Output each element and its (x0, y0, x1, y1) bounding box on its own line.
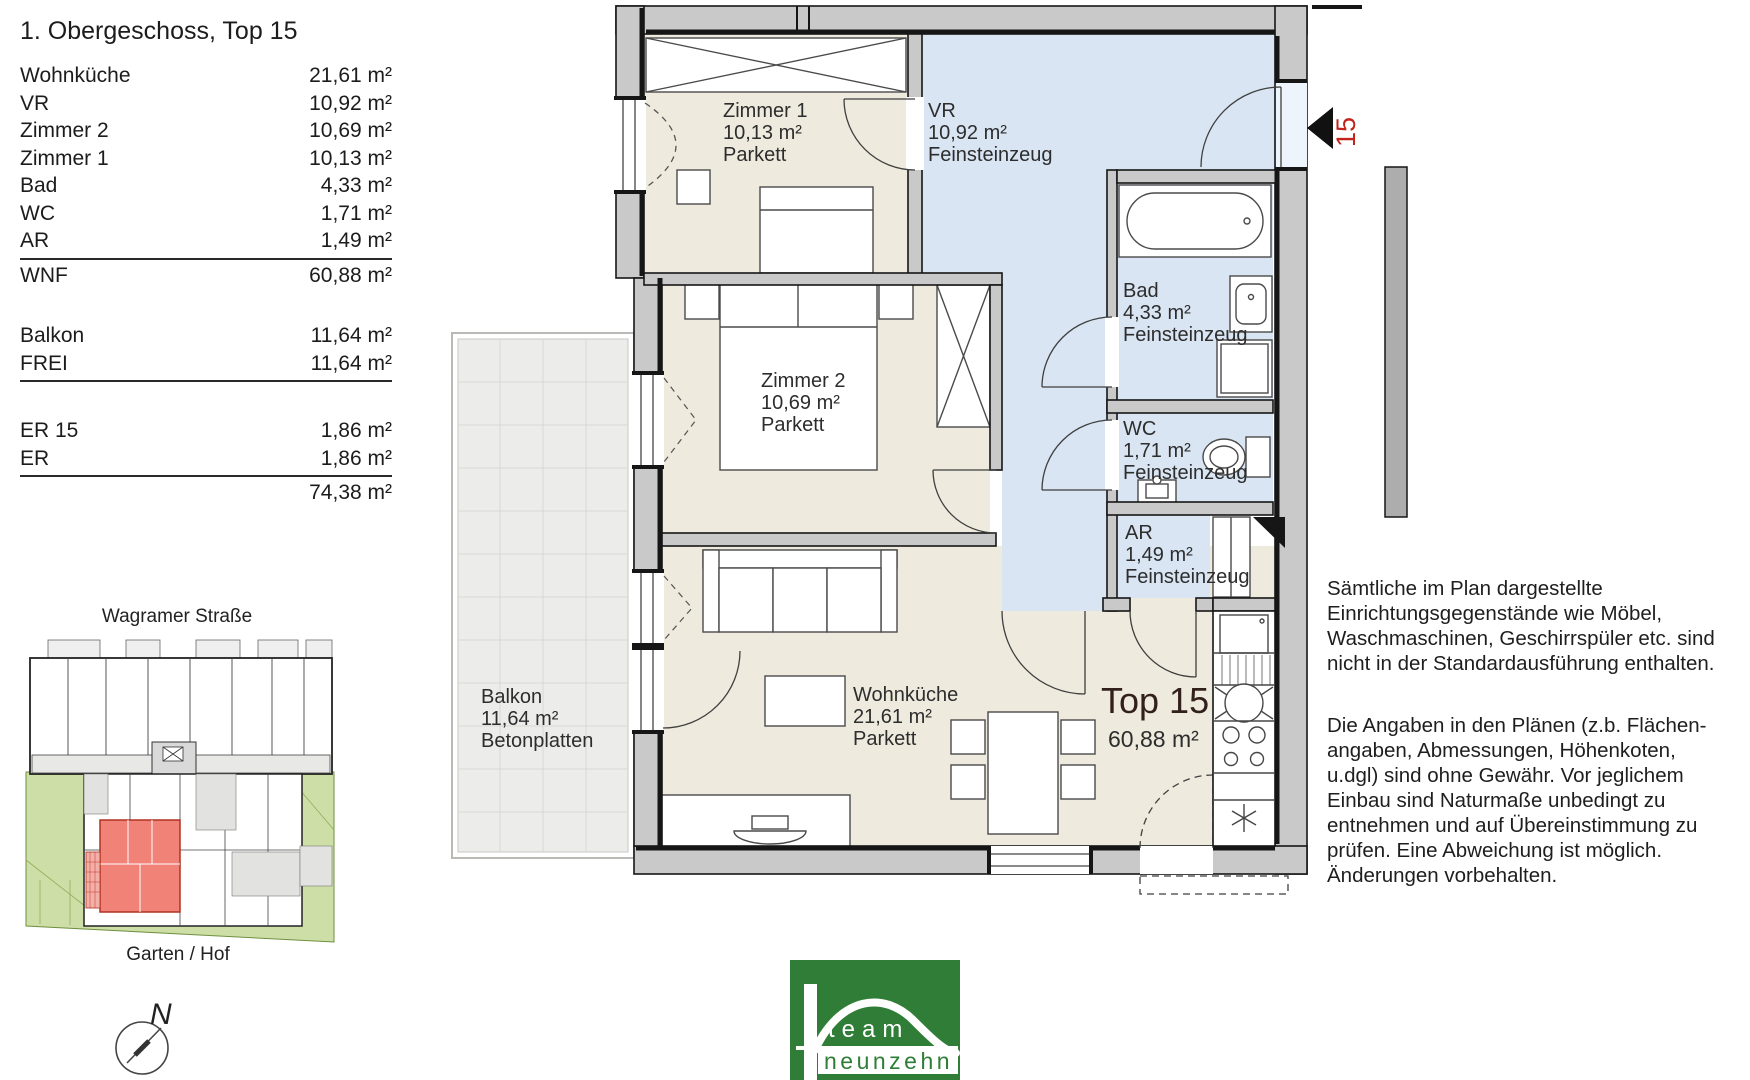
bed-icon (760, 187, 873, 273)
table-row: FREI11,64 m² (20, 350, 392, 378)
table-row: Balkon11,64 m² (20, 322, 392, 350)
core-wall (1385, 167, 1407, 517)
wardrobe-icon (937, 285, 990, 427)
dining-table-icon (988, 712, 1058, 834)
garden-label: Garten / Hof (106, 944, 250, 966)
nightstand-icon (879, 283, 913, 319)
unit-area: 60,88 m² (1108, 726, 1199, 753)
entrance-arrow-icon (1307, 107, 1333, 149)
table-row: VR10,92 m² (20, 90, 392, 118)
company-logo: team neunzehn (790, 960, 960, 1080)
nightstand-icon (685, 283, 719, 319)
table-row: Zimmer 110,13 m² (20, 145, 392, 173)
site-stair-core (152, 742, 196, 774)
disclaimer-paragraph-2: Die Angaben in den Plänen (z.b. Flächen-… (1327, 713, 1731, 888)
disclaimer-paragraph-1: Sämtliche im Plan dargestellte Einrichtu… (1327, 576, 1731, 676)
washing-machine-icon (1217, 340, 1272, 397)
chair-icon (951, 765, 985, 799)
table-row-total: 74,38 m² (20, 479, 392, 507)
site-plan (26, 640, 334, 942)
table-row: AR1,49 m² (20, 227, 392, 255)
room-label-ar: AR 1,49 m² Feinsteinzeug (1125, 522, 1250, 588)
room-label-zimmer1: Zimmer 1 10,13 m² Parkett (723, 100, 807, 166)
site-highlight-unit (86, 820, 180, 912)
table-row: ER 151,86 m² (20, 417, 392, 445)
coffee-table-icon (765, 676, 845, 726)
table-row: Wohnküche21,61 m² (20, 62, 392, 90)
wardrobe-icon (646, 38, 906, 92)
room-label-balkon: Balkon 11,64 m² Betonplatten (481, 686, 593, 752)
kitchen (1213, 611, 1275, 846)
logo-line1: team (828, 1016, 909, 1044)
table-row: Zimmer 210,69 m² (20, 117, 392, 145)
disclaimer-text: Sämtliche im Plan dargestellte Einrichtu… (1327, 576, 1731, 888)
floorplan-sheet: 1. Obergeschoss, Top 15 Wohnküche21,61 m… (0, 0, 1750, 1080)
room-label-wohnkueche: Wohnküche 21,61 m² Parkett (853, 684, 958, 750)
area-table: 1. Obergeschoss, Top 15 Wohnküche21,61 m… (20, 16, 392, 507)
compass-north-label: N (150, 998, 172, 1032)
chair-icon (1061, 720, 1095, 754)
balcony (452, 333, 634, 858)
table-rule (20, 475, 392, 477)
sofa-icon (703, 550, 897, 632)
room-label-vr: VR 10,92 m² Feinsteinzeug (928, 100, 1053, 166)
unit-label: Top 15 (1101, 680, 1209, 722)
room-label-wc: WC 1,71 m² Feinsteinzeug (1123, 418, 1248, 484)
entrance-number: 15 (1331, 107, 1361, 147)
logo-line2: neunzehn (824, 1048, 953, 1075)
table-row-wnf: WNF60,88 m² (20, 262, 392, 290)
room-label-bad: Bad 4,33 m² Feinsteinzeug (1123, 280, 1248, 346)
street-label: Wagramer Straße (93, 606, 261, 628)
table-row: ER1,86 m² (20, 445, 392, 473)
nightstand-icon (677, 170, 710, 204)
page-title: 1. Obergeschoss, Top 15 (20, 16, 392, 46)
bathtub-icon (1119, 185, 1271, 257)
table-rule (20, 380, 392, 382)
chair-icon (1061, 765, 1095, 799)
room-label-zimmer2: Zimmer 2 10,69 m² Parkett (761, 370, 845, 436)
table-row: Bad4,33 m² (20, 172, 392, 200)
table-rule (20, 258, 392, 260)
table-row: WC1,71 m² (20, 200, 392, 228)
